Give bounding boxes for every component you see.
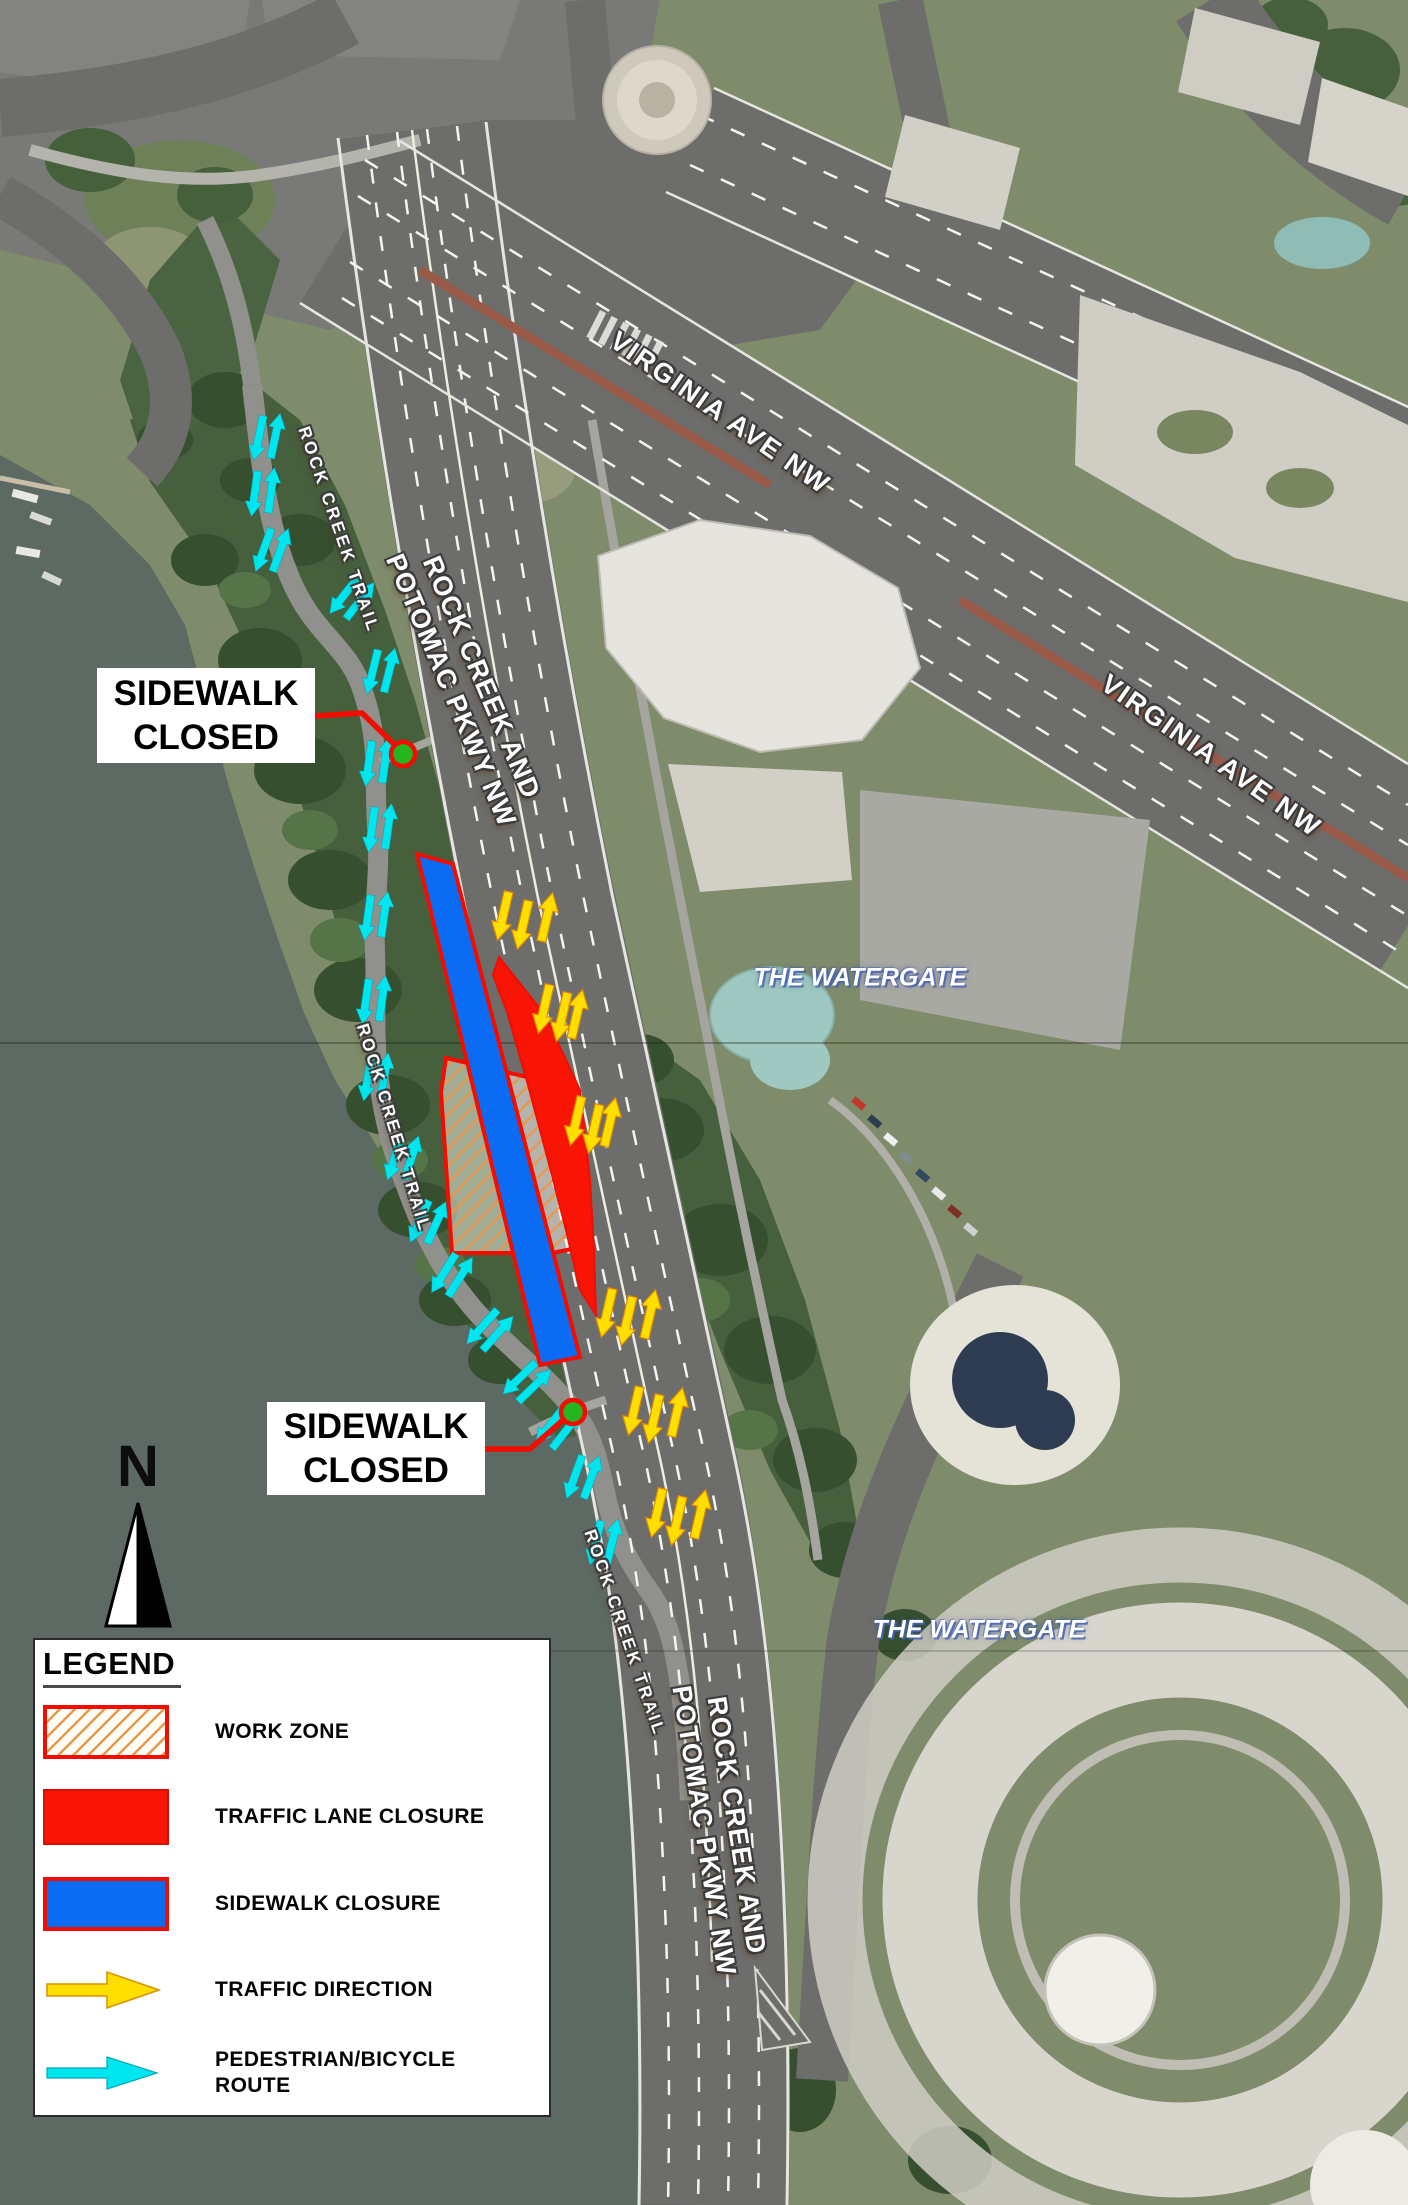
legend-item-work-zone: WORK ZONE <box>43 1704 543 1760</box>
closure-point-marker-north <box>391 742 415 766</box>
legend-item-pedestrian-bicycle-route: PEDESTRIAN/BICYCLE ROUTE <box>43 2042 543 2104</box>
legend-item-traffic-direction: TRAFFIC DIRECTION <box>43 1962 543 2018</box>
legend-item-traffic-lane-closure: TRAFFIC LANE CLOSURE <box>43 1788 543 1846</box>
legend-item-label: SIDEWALK CLOSURE <box>215 1891 441 1917</box>
work-zone-swatch-icon <box>43 1705 169 1759</box>
sidewalk-closed-callout-north: SIDEWALK CLOSED <box>97 668 315 763</box>
sidewalk-closed-text: SIDEWALK CLOSED <box>284 1405 469 1493</box>
place-label-the-watergate-north: THE WATERGATE <box>754 964 967 993</box>
legend-item-label: PEDESTRIAN/BICYCLE ROUTE <box>215 2047 456 2099</box>
sidewalk-closed-callout-south: SIDEWALK CLOSED <box>267 1402 485 1495</box>
place-label-the-watergate-south: THE WATERGATE <box>873 1616 1086 1645</box>
pedestrian-bicycle-route-arrow-icon <box>43 2050 169 2096</box>
legend-item-sidewalk-closure: SIDEWALK CLOSURE <box>43 1876 543 1932</box>
north-arrow: N <box>88 1438 188 1630</box>
legend-item-label: WORK ZONE <box>215 1719 349 1745</box>
north-label: N <box>88 1438 188 1496</box>
sidewalk-closure-swatch-icon <box>43 1877 169 1931</box>
traffic-control-plan-map: SIDEWALK CLOSED SIDEWALK CLOSED N LEGEND… <box>0 0 1408 2205</box>
traffic-direction-arrow-icon <box>43 1967 169 2013</box>
north-arrow-icon <box>98 1500 178 1630</box>
sidewalk-closed-text: SIDEWALK CLOSED <box>114 672 299 760</box>
traffic-lane-closure-swatch-icon <box>43 1789 169 1845</box>
legend-title: LEGEND <box>43 1646 181 1688</box>
legend-panel: LEGEND WORK ZONE TRAFFIC LANE CLOSURE SI… <box>33 1638 551 2117</box>
legend-item-label: TRAFFIC LANE CLOSURE <box>215 1804 484 1830</box>
legend-item-label: TRAFFIC DIRECTION <box>215 1977 433 2003</box>
closure-point-marker-south <box>561 1400 585 1424</box>
